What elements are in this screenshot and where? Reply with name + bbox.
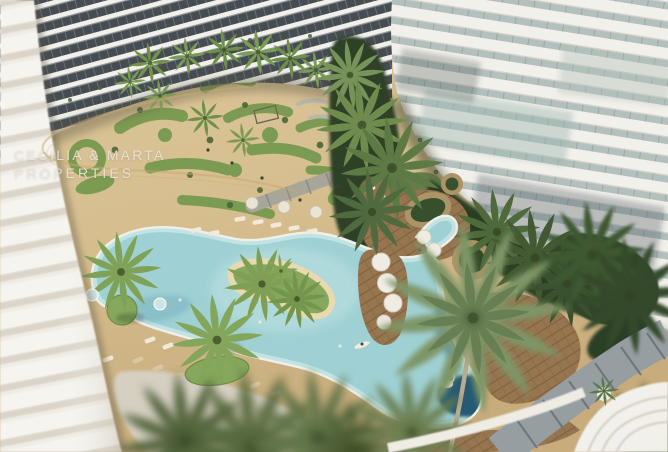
lawn-patch (228, 163, 242, 177)
balcony-plant (308, 34, 312, 38)
person (260, 176, 263, 179)
balcony-plant (278, 34, 282, 38)
parasol-teal (154, 298, 166, 310)
bush (257, 187, 263, 193)
cabana-green-roof (446, 178, 459, 191)
balcony-plant (418, 138, 423, 143)
bush (317, 142, 324, 149)
balcony-plant (98, 86, 102, 90)
bush (242, 102, 248, 108)
bush (112, 147, 119, 154)
kayak-rider (361, 343, 364, 346)
person (206, 148, 209, 151)
round-daybed (417, 230, 431, 244)
round-parasol (384, 294, 402, 312)
person (298, 198, 301, 201)
lawn-patch (158, 128, 172, 142)
balcony-plant (248, 38, 252, 42)
round-parasol (372, 253, 390, 271)
balcony-plant (434, 170, 439, 175)
resort-aerial-render: CECILIA & MARTA PROPERTIES (0, 0, 668, 452)
palm-shadow (116, 313, 144, 323)
balcony-plant (68, 98, 72, 102)
swimmer (178, 298, 181, 301)
swimmer (258, 320, 261, 323)
parasol (246, 197, 258, 209)
lawn-patch (262, 127, 278, 143)
bush (187, 172, 193, 178)
parasol (278, 201, 290, 213)
bush (282, 117, 288, 123)
person (230, 161, 233, 164)
bush (227, 202, 233, 208)
person (336, 184, 339, 187)
swimmer (338, 344, 341, 347)
resort-scene-image (0, 0, 668, 452)
bush (207, 137, 214, 144)
parasol (310, 206, 322, 218)
